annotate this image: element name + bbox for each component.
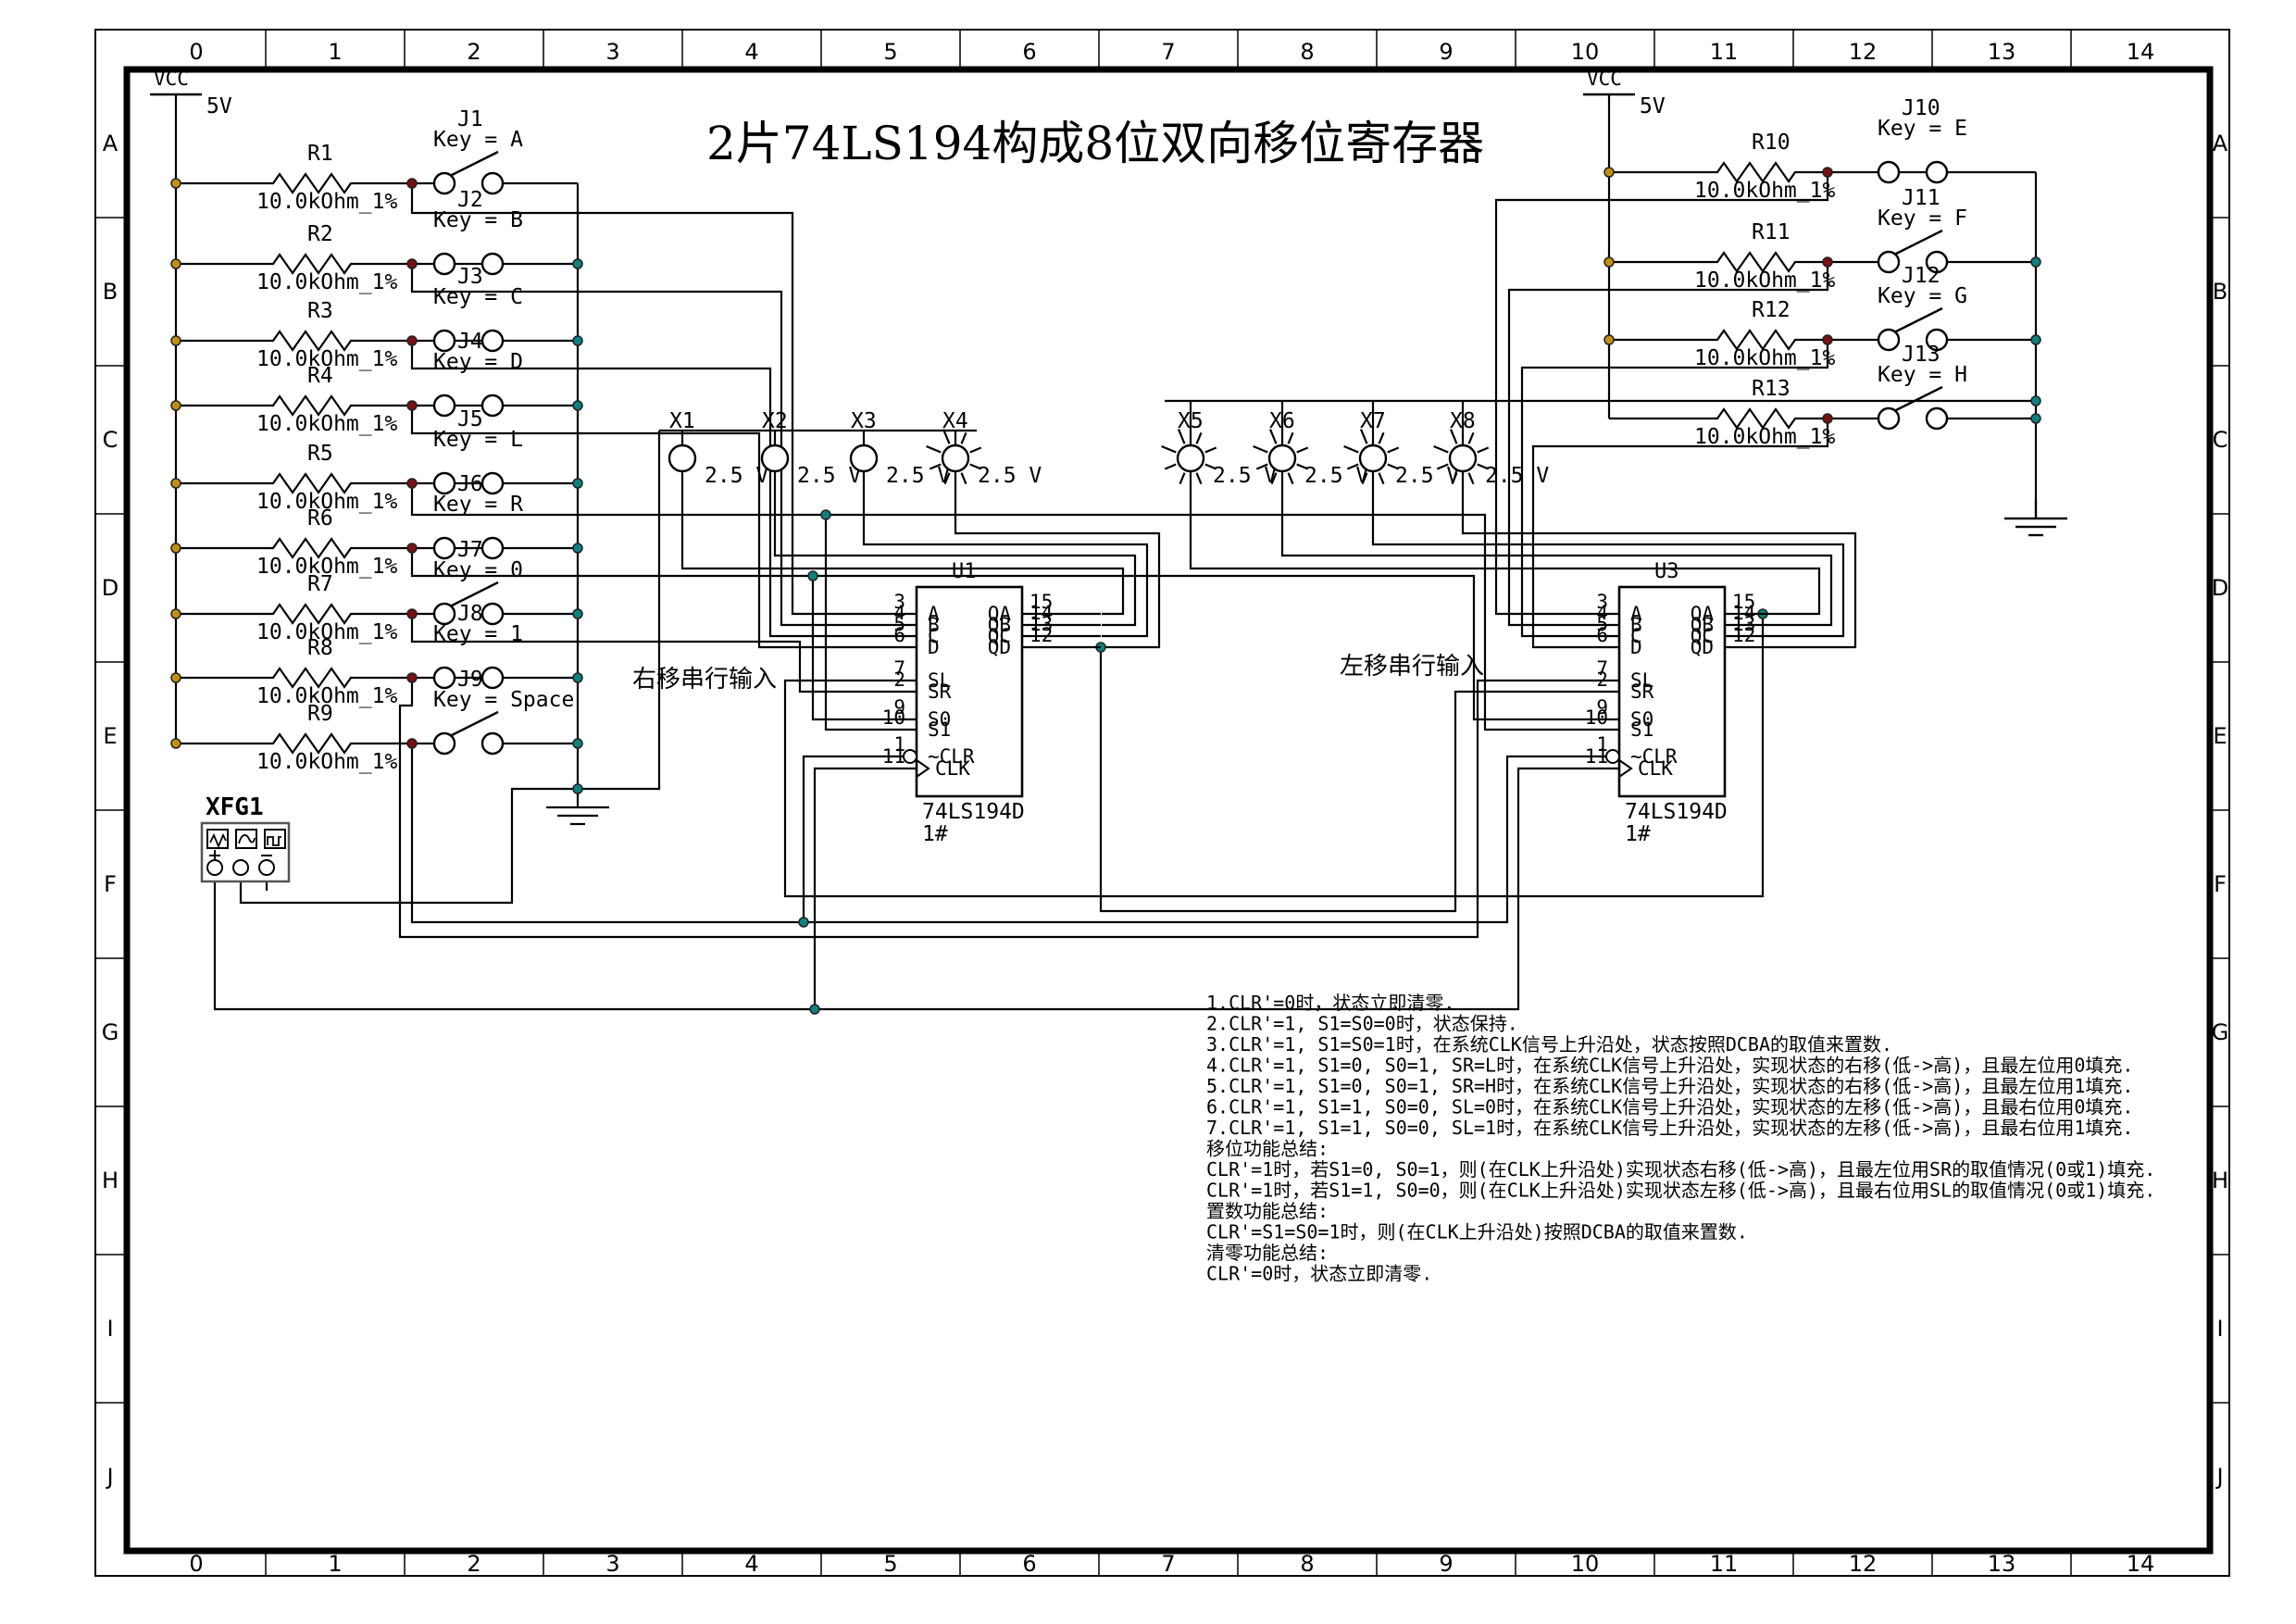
resistor-name: R7 [307, 572, 333, 596]
junction-dot [573, 259, 582, 269]
junction-dot [407, 401, 417, 410]
junction-dot [1604, 335, 1614, 344]
resistor-R4[interactable]: R410.0kOhm_1% [256, 364, 397, 436]
pin-name: CLK [935, 757, 970, 780]
grid-col-label: 4 [744, 39, 758, 65]
switch-key: Key = L [433, 428, 523, 452]
grid-col-label: 5 [883, 1551, 897, 1577]
resistor-name: R2 [307, 222, 333, 246]
switch-key: Key = F [1878, 206, 1967, 231]
junction-dot [2031, 396, 2040, 406]
junction-dot [1823, 414, 1832, 423]
grid-row-label: D [2212, 575, 2228, 601]
schematic-canvas: 0011223344556677889910101111121213131414… [0, 0, 2296, 1624]
resistor-value: 10.0kOhm_1% [1694, 269, 1835, 293]
pin-name: QD [988, 636, 1011, 658]
grid-row-label: G [102, 1019, 119, 1045]
switch-key: Key = D [433, 350, 523, 374]
switch-J1[interactable]: J1Key = A [433, 107, 523, 194]
lamp-bulb [1178, 445, 1204, 471]
grid-col-label: 9 [1439, 1551, 1453, 1577]
vcc-label: VCC [1587, 68, 1622, 90]
grid-row-label: E [103, 723, 117, 749]
grid-col-label: 8 [1300, 1551, 1314, 1577]
junction-dot [407, 673, 417, 682]
junction-dot [2031, 257, 2040, 267]
junction-dot [2031, 335, 2040, 344]
lamp-bulb [669, 445, 695, 471]
note-line: 7.CLR'=1, S1=1, S0=0, SL=1时，在系统CLK信号上升沿处… [1206, 1117, 2133, 1139]
resistor-value: 10.0kOhm_1% [256, 190, 397, 214]
junction-dot [573, 784, 582, 793]
junction-dot [821, 510, 830, 519]
ground-symbol [2004, 500, 2067, 535]
resistor-name: R6 [307, 506, 333, 531]
grid-row-label: H [102, 1168, 119, 1193]
junction-dot [573, 739, 582, 748]
grid-col-label: 12 [1849, 39, 1878, 65]
function-generator-xfg1[interactable]: XFG1 [202, 793, 289, 881]
vcc-symbol: VCC5V [1583, 68, 1666, 119]
resistor-name: R12 [1752, 298, 1791, 322]
grid-col-label: 7 [1161, 39, 1175, 65]
lamp-voltage: 2.5 V [1485, 464, 1549, 488]
pin-number: 10 [882, 706, 905, 729]
pin-name: SR [928, 681, 952, 703]
junction-dot [2031, 414, 2040, 423]
lamp-bulb [1269, 445, 1295, 471]
junction-dot [1823, 168, 1832, 177]
junction-dot [407, 739, 417, 748]
pin-name: S1 [928, 718, 951, 741]
chip-part: 74LS194D [1625, 800, 1728, 824]
switch-key: Key = R [433, 493, 523, 517]
resistor-R1[interactable]: R110.0kOhm_1% [256, 142, 397, 214]
grid-col-label: 11 [1710, 39, 1739, 65]
lamp-voltage: 2.5 V [886, 464, 950, 488]
xfg-terminal[interactable] [233, 860, 248, 875]
resistor-R9[interactable]: R910.0kOhm_1% [256, 702, 397, 774]
resistor-name: R4 [307, 364, 333, 388]
grid-col-label: 14 [2127, 1551, 2155, 1577]
resistor-R6[interactable]: R610.0kOhm_1% [256, 506, 397, 579]
pin-name: D [1630, 636, 1642, 658]
note-line: 3.CLR'=1, S1=S0=1时，在系统CLK信号上升沿处，状态按照DCBA… [1206, 1033, 1892, 1056]
switch-J13[interactable]: J13Key = H [1878, 343, 1967, 429]
grid-col-label: 4 [744, 1551, 758, 1577]
pin-number: 11 [882, 745, 905, 768]
grid-col-label: 3 [605, 39, 619, 65]
grid-row-label: A [2213, 131, 2228, 156]
lamp-name: X8 [1450, 409, 1476, 433]
chip-refdes: U3 [1654, 560, 1679, 583]
chip-refdes: U1 [952, 560, 977, 583]
resistor-name: R10 [1752, 131, 1791, 155]
net-labels: 右移串行输入左移串行输入 [632, 653, 1484, 693]
pin-number: 10 [1585, 706, 1608, 729]
resistor-name: R1 [307, 142, 333, 166]
sine-wave-icon[interactable] [236, 830, 256, 848]
junction-dot [1604, 257, 1614, 267]
pin-number: 6 [1596, 624, 1608, 646]
note-line: 移位功能总结: [1206, 1138, 1329, 1160]
grid-row-label: C [103, 427, 119, 453]
switch-key: Key = B [433, 208, 523, 232]
note-line: 6.CLR'=1, S1=1, S0=0, SL=0时，在系统CLK信号上升沿处… [1206, 1096, 2133, 1118]
lamp-name: X6 [1269, 409, 1295, 433]
grid-row-label: I [106, 1316, 113, 1342]
junction-dot [171, 739, 181, 748]
schematic-title: 2片74LS194构成8位双向移位寄存器 [706, 117, 1484, 170]
junction-dot [573, 673, 582, 682]
xfg-terminal[interactable] [207, 860, 222, 875]
lamp-bulb [762, 445, 788, 471]
switch-key: Key = 0 [433, 558, 523, 582]
note-line: CLR'=1时，若S1=0, S0=1，则(在CLK上升沿处)实现状态右移(低-… [1206, 1158, 2155, 1181]
resistor-name: R13 [1752, 377, 1791, 401]
grid-row-label: B [103, 279, 118, 305]
junction-dot [171, 179, 181, 188]
resistor-name: R5 [307, 442, 333, 466]
junction-dot [1823, 257, 1832, 267]
junction-dot [407, 543, 417, 553]
resistor-value: 10.0kOhm_1% [256, 412, 397, 436]
note-line: 清零功能总结: [1206, 1242, 1329, 1264]
note-line: 置数功能总结: [1206, 1200, 1329, 1222]
junction-dot [171, 401, 181, 410]
junction-dot [171, 259, 181, 269]
grid-col-label: 5 [883, 39, 897, 65]
grid-col-label: 0 [189, 1551, 203, 1577]
resistor-value: 10.0kOhm_1% [1694, 425, 1835, 449]
switch-key: Key = Space [433, 688, 574, 712]
page-title: 2片74LS194构成8位双向移位寄存器 [706, 117, 1484, 170]
resistor-value: 10.0kOhm_1% [1694, 179, 1835, 203]
note-line: 5.CLR'=1, S1=0, S0=1, SR=H时，在系统CLK信号上升沿处… [1206, 1075, 2133, 1097]
grid-col-label: 2 [467, 1551, 480, 1577]
lamp-bulb [942, 445, 968, 471]
junction-dot [407, 609, 417, 618]
pin-number: 12 [1732, 624, 1755, 646]
switch-key: Key = C [433, 285, 523, 309]
lamp-X1[interactable]: X12.5 V [669, 409, 768, 488]
lamp-bulb [1360, 445, 1386, 471]
junction-dot [1604, 168, 1614, 177]
resistor-value: 10.0kOhm_1% [1694, 346, 1835, 370]
switch-J2[interactable]: J2Key = B [433, 188, 523, 274]
resistor-name: R8 [307, 636, 333, 660]
lamp-name: X2 [762, 409, 788, 433]
note-line: 1.CLR'=0时，状态立即清零. [1206, 992, 1454, 1014]
pin-number: 12 [1029, 624, 1053, 646]
junction-dot [171, 479, 181, 488]
resistor-name: R9 [307, 702, 333, 726]
junction-dot [573, 609, 582, 618]
junction-dot [407, 259, 417, 269]
chip-part: 74LS194D [922, 800, 1025, 824]
lamp-name: X4 [942, 409, 968, 433]
switch-J11[interactable]: J11Key = F [1878, 186, 1967, 272]
resistor-R3[interactable]: R310.0kOhm_1% [256, 299, 397, 371]
grid-col-label: 2 [467, 39, 480, 65]
clr-bubble-icon [904, 750, 917, 763]
pin-name: CLK [1638, 757, 1673, 780]
grid-row-label: A [103, 131, 119, 156]
note-line: 4.CLR'=1, S1=0, S0=1, SR=L时，在系统CLK信号上升沿处… [1206, 1055, 2133, 1077]
clr-bubble-icon [1606, 750, 1619, 763]
junction-dot [171, 673, 181, 682]
xfg-terminal[interactable] [259, 860, 274, 875]
grid-row-label: J [2215, 1464, 2223, 1490]
lamp-voltage: 2.5 V [705, 464, 768, 488]
lamp-bulb [1450, 445, 1476, 471]
lamp-voltage: 2.5 V [1213, 464, 1277, 488]
lamp-X2[interactable]: X22.5 V [762, 409, 861, 488]
vcc-label: VCC [154, 68, 189, 90]
grid-col-label: 14 [2127, 39, 2155, 65]
lamp-name: X1 [669, 409, 695, 433]
grid-row-label: I [2216, 1316, 2223, 1342]
switch-J12[interactable]: J12Key = G [1878, 264, 1967, 350]
grid-col-label: 13 [1988, 39, 2016, 65]
chip-variant: 1# [922, 822, 948, 846]
pin-number: 2 [893, 668, 905, 691]
grid-col-label: 3 [605, 1551, 619, 1577]
lamp-name: X7 [1360, 409, 1386, 433]
vcc-symbol: VCC5V [150, 68, 232, 119]
switch-key: Key = H [1878, 363, 1967, 387]
junction-dot [407, 179, 417, 188]
chip-U3[interactable]: 3A4B5C6D7SL2SR9S010S11~CLR11CLK15QA14QB1… [1541, 560, 1803, 846]
junction-dot [573, 543, 582, 553]
grid-col-label: 9 [1439, 39, 1453, 65]
junction-dot [808, 571, 817, 581]
lamp-X3[interactable]: X32.5 V [851, 409, 950, 488]
resistor-value: 10.0kOhm_1% [256, 750, 397, 774]
grid-row-label: E [2213, 723, 2227, 749]
switch-key: Key = G [1878, 284, 1967, 308]
grid-col-label: 8 [1300, 39, 1314, 65]
junction-dot [810, 1005, 819, 1014]
resistor-R8[interactable]: R810.0kOhm_1% [256, 636, 397, 708]
grid-col-label: 10 [1571, 39, 1600, 65]
resistor-R12[interactable]: R1210.0kOhm_1% [1694, 298, 1835, 370]
switch-key: Key = 1 [433, 622, 523, 646]
pin-name: S1 [1630, 718, 1653, 741]
pin-name: D [928, 636, 940, 658]
note-line: CLR'=0时，状态立即清零. [1206, 1263, 1432, 1285]
junction-dot [573, 479, 582, 488]
grid-row-label: B [2213, 279, 2227, 305]
lamp-voltage: 2.5 V [1395, 464, 1459, 488]
grid-col-label: 7 [1161, 1551, 1175, 1577]
grid-row-label: F [104, 871, 117, 897]
chip-U1[interactable]: 3A4B5C6D7SL2SR9S010S11~CLR11CLK15QA14QB1… [838, 560, 1101, 846]
junction-dot [573, 401, 582, 410]
switch-key: Key = A [433, 128, 523, 152]
net-label-left-shift: 左移串行输入 [1340, 653, 1484, 681]
resistor-name: R11 [1752, 220, 1791, 244]
notes-block: 1.CLR'=0时，状态立即清零.2.CLR'=1, S1=S0=0时，状态保持… [1206, 992, 2155, 1285]
net-label-right-shift: 右移串行输入 [632, 666, 777, 693]
switch-key: Key = E [1878, 117, 1967, 141]
grid-row-label: H [2212, 1168, 2228, 1193]
lamp-voltage: 2.5 V [978, 464, 1042, 488]
lamp-name: X5 [1178, 409, 1204, 433]
grid-row-label: J [105, 1464, 113, 1490]
pin-name: QD [1691, 636, 1714, 658]
pin-number: 11 [1585, 745, 1608, 768]
resistor-value: 10.0kOhm_1% [256, 270, 397, 294]
grid-col-label: 6 [1022, 39, 1036, 65]
note-line: 2.CLR'=1, S1=S0=0时，状态保持. [1206, 1013, 1518, 1035]
grid-col-label: 1 [328, 39, 342, 65]
grid-col-label: 11 [1710, 1551, 1739, 1577]
vcc-voltage: 5V [1640, 94, 1666, 119]
resistor-R2[interactable]: R210.0kOhm_1% [256, 222, 397, 294]
note-line: CLR'=1时，若S1=1, S0=0，则(在CLK上升沿处)实现状态左移(低-… [1206, 1180, 2155, 1202]
resistor-R7[interactable]: R710.0kOhm_1% [256, 572, 397, 644]
lamp-name: X3 [851, 409, 877, 433]
pin-name: SR [1630, 681, 1654, 703]
junction-dot [407, 479, 417, 488]
schematic-svg: 0011223344556677889910101111121213131414… [0, 0, 2296, 1624]
chip-variant: 1# [1625, 822, 1651, 846]
lamp-voltage: 2.5 V [797, 464, 861, 488]
junction-dot [573, 336, 582, 345]
resistor-R10[interactable]: R1010.0kOhm_1% [1694, 131, 1835, 203]
grid-col-label: 10 [1571, 1551, 1600, 1577]
grid-row-label: F [2214, 871, 2227, 897]
pin-number: 2 [1596, 668, 1608, 691]
grid-col-label: 6 [1022, 1551, 1036, 1577]
junction-dot [171, 609, 181, 618]
pin-number: 6 [893, 624, 905, 646]
grid-col-label: 1 [328, 1551, 342, 1577]
junction-dot [799, 918, 808, 927]
junction-dot [171, 543, 181, 553]
junction-dot [407, 336, 417, 345]
note-line: CLR'=S1=S0=1时，则(在CLK上升沿处)按照DCBA的取值来置数. [1206, 1221, 1748, 1243]
grid-row-label: G [2212, 1019, 2229, 1045]
switch-J10[interactable]: J10Key = E [1878, 96, 1967, 182]
vcc-voltage: 5V [206, 94, 232, 119]
resistor-R5[interactable]: R510.0kOhm_1% [256, 442, 397, 514]
resistor-name: R3 [307, 299, 333, 323]
junction-dot [171, 336, 181, 345]
grid-col-label: 13 [1988, 1551, 2016, 1577]
grid-row-label: C [2213, 427, 2228, 453]
resistor-R13[interactable]: R1310.0kOhm_1% [1694, 377, 1835, 449]
lamp-bulb [851, 445, 877, 471]
grid-col-label: 12 [1849, 1551, 1878, 1577]
junction-dot [1823, 335, 1832, 344]
instrument-name: XFG1 [206, 793, 264, 821]
lamp-voltage: 2.5 V [1304, 464, 1368, 488]
grid-row-label: D [102, 575, 119, 601]
resistor-R11[interactable]: R1110.0kOhm_1% [1694, 220, 1835, 293]
grid-col-label: 0 [189, 39, 203, 65]
